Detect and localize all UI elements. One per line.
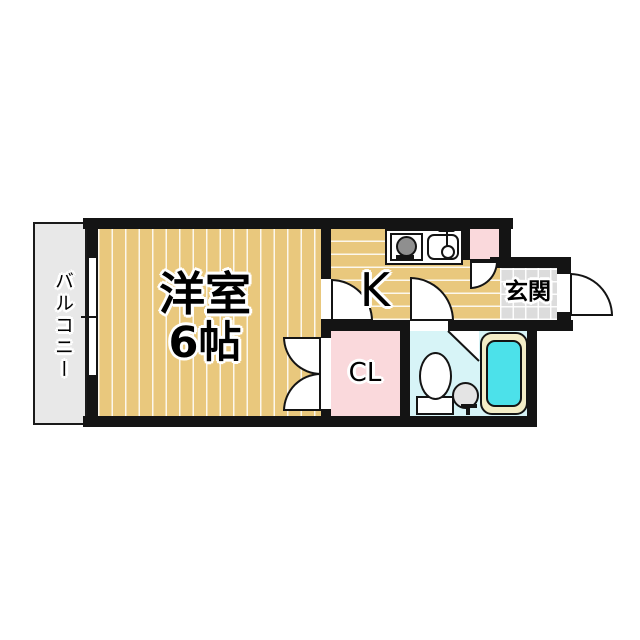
faucet-knob — [441, 245, 455, 259]
toilet-icon — [419, 352, 452, 400]
window-center-tick — [81, 316, 98, 318]
door-entrance — [570, 273, 613, 316]
wall-bottom — [83, 416, 537, 427]
wall-kitchen-bottom-right — [448, 320, 573, 331]
wall-entrance-right-upper — [557, 257, 571, 274]
wall-kitchen-bottom-left — [321, 320, 407, 331]
wall-main-east-lower — [321, 409, 331, 427]
kitchen-label: K — [340, 266, 410, 314]
wall-closet-right — [400, 320, 410, 416]
stove-handle — [396, 255, 414, 259]
wall-main-east-upper — [321, 218, 331, 279]
floor-plan: 洋室 6帖 K CL 玄関 バルコニー — [0, 0, 640, 640]
entrance-label: 玄関 — [496, 280, 560, 304]
balcony-label: バルコニー — [46, 248, 72, 403]
closet-label: CL — [330, 360, 400, 387]
wall-bathroom-right — [527, 331, 537, 416]
wall-entrance-top — [490, 257, 562, 268]
faucet-handle — [438, 228, 455, 232]
wall-entrance-right-lower — [557, 312, 571, 331]
bath-faucet-stub — [466, 408, 470, 415]
bathtub-water — [486, 340, 522, 407]
main-room-size-label: 6帖 — [120, 321, 290, 366]
main-room-label: 洋室 — [120, 270, 290, 318]
stove-burner — [396, 236, 417, 257]
